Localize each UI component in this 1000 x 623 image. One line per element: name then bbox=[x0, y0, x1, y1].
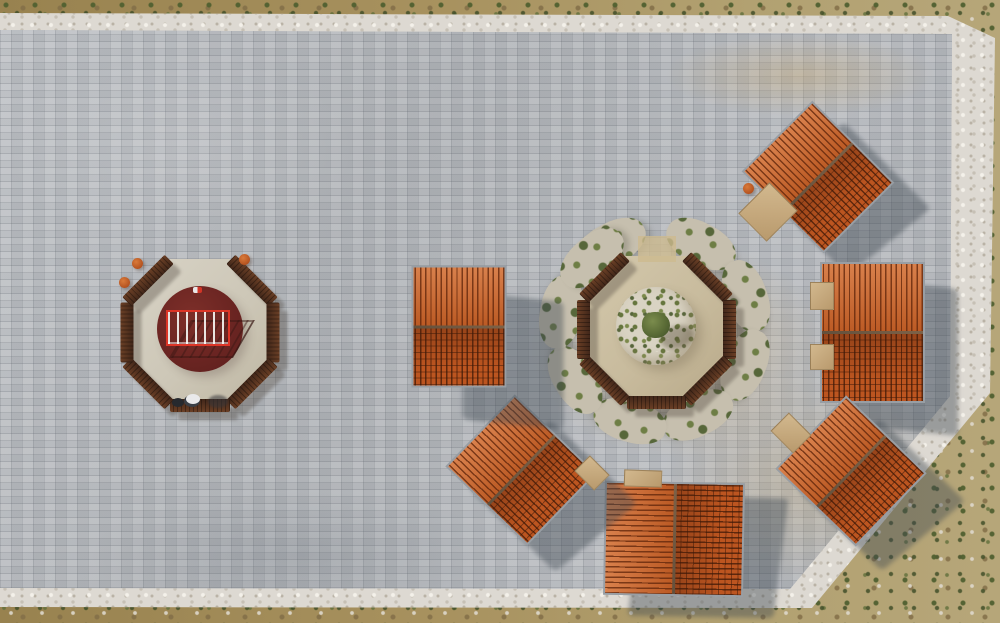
roof-ridge bbox=[414, 325, 505, 328]
bench-segment bbox=[267, 302, 280, 362]
aerial-photo-plaza bbox=[0, 0, 1000, 623]
bench-segment bbox=[577, 300, 590, 359]
bench-segment bbox=[121, 302, 134, 362]
roof-slope-bright bbox=[414, 267, 505, 326]
roof-slope-shaded bbox=[822, 332, 923, 401]
pavilion-west bbox=[412, 265, 507, 387]
central-tree bbox=[642, 312, 670, 338]
pavilion-deck bbox=[624, 469, 663, 487]
roof-slope-shaded bbox=[414, 326, 505, 385]
red-railing-platform bbox=[166, 310, 230, 346]
pavilion-deck bbox=[810, 282, 834, 310]
bench-segment bbox=[723, 300, 736, 359]
person bbox=[186, 394, 200, 404]
pavilion-deck bbox=[810, 344, 834, 370]
terracotta-pot bbox=[239, 254, 250, 265]
terracotta-pot bbox=[743, 183, 754, 194]
dog bbox=[172, 398, 184, 407]
light-paving-tint bbox=[0, 20, 420, 280]
bench-segment bbox=[627, 396, 686, 409]
roof-slope-shaded bbox=[673, 484, 743, 595]
person-shadow bbox=[208, 395, 228, 408]
terracotta-pot bbox=[119, 277, 130, 288]
roof-ridge bbox=[822, 331, 923, 334]
small-marker bbox=[193, 287, 202, 293]
garden-entrance-path bbox=[638, 236, 676, 262]
terracotta-pot bbox=[132, 258, 143, 269]
pavilion-east bbox=[820, 262, 925, 403]
roof-slope-bright bbox=[822, 264, 923, 333]
